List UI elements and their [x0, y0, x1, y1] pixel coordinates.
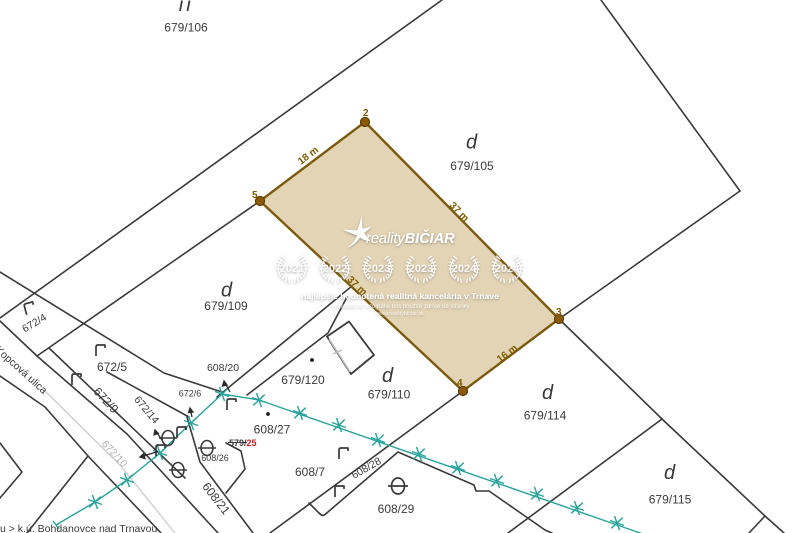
svg-text:u > k.ú. Bohdanovce nad Trnavo: u > k.ú. Bohdanovce nad Trnavou: [0, 523, 157, 533]
svg-text:679/105: 679/105: [450, 159, 494, 173]
svg-text:2023: 2023: [409, 263, 433, 275]
svg-text:2022: 2022: [323, 263, 347, 275]
svg-text:679/114: 679/114: [524, 409, 567, 423]
svg-text:v prípade že fotografie boli p: v prípade že fotografie boli použité zdr…: [330, 304, 469, 310]
svg-text:2: 2: [363, 108, 369, 119]
svg-text:d: d: [542, 382, 554, 404]
svg-text:679/106: 679/106: [164, 21, 208, 35]
svg-text:www.realitybiciar.sk: www.realitybiciar.sk: [375, 311, 424, 317]
svg-text:608/20: 608/20: [207, 362, 239, 374]
svg-text:5: 5: [252, 190, 258, 201]
svg-text:608/29: 608/29: [378, 502, 415, 516]
svg-text:3: 3: [556, 307, 562, 318]
svg-text:d: d: [664, 462, 676, 484]
svg-text:4: 4: [457, 378, 463, 389]
svg-text:d: d: [382, 365, 394, 387]
svg-text:672/5: 672/5: [97, 360, 127, 374]
svg-text:2023: 2023: [366, 263, 390, 275]
svg-text:608/27: 608/27: [254, 423, 291, 437]
svg-text:679/115: 679/115: [649, 493, 692, 507]
svg-text:2021: 2021: [280, 263, 304, 275]
svg-text:najlepšie hodnotená realitná k: najlepšie hodnotená realitná kancelária …: [301, 291, 499, 301]
svg-text:2024: 2024: [495, 263, 520, 275]
svg-text:d: d: [466, 132, 478, 154]
svg-text:679/110: 679/110: [368, 388, 411, 402]
svg-text:679/109: 679/109: [204, 299, 248, 313]
svg-text:realityBIČIAR: realityBIČIAR: [366, 229, 455, 247]
svg-text:2024: 2024: [452, 263, 477, 275]
svg-text:679/120: 679/120: [281, 373, 325, 387]
svg-text:672/6: 672/6: [179, 389, 202, 399]
svg-text:608/7: 608/7: [295, 465, 325, 479]
